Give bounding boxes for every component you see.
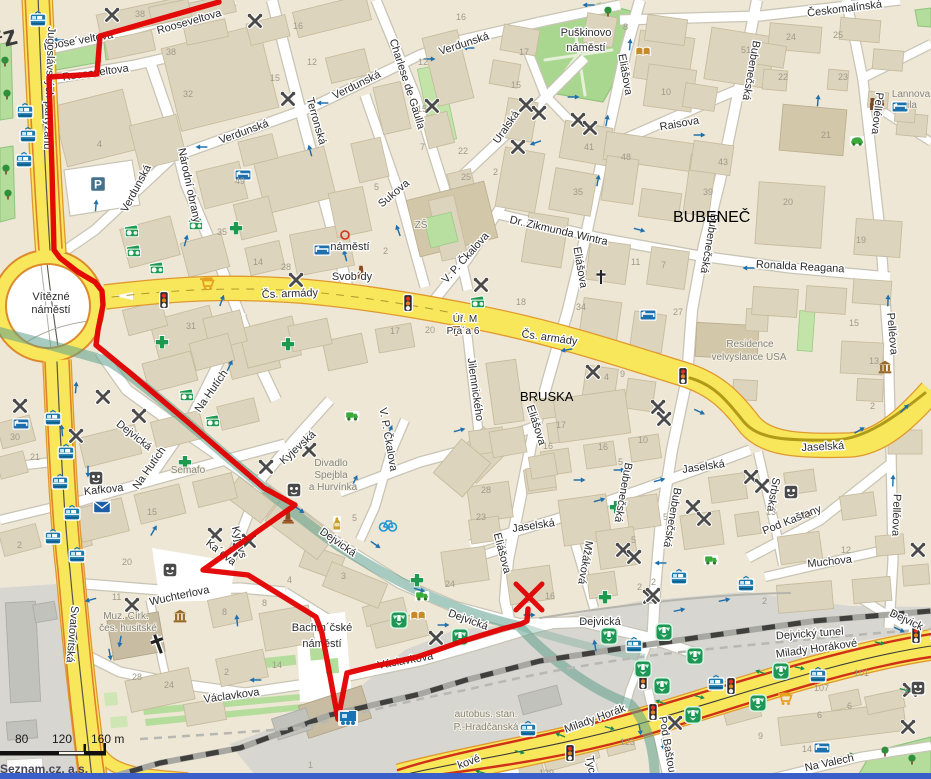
svg-text:9: 9	[758, 731, 763, 741]
svg-text:1: 1	[308, 760, 313, 770]
svg-text:20: 20	[425, 325, 435, 335]
svg-text:5: 5	[374, 182, 379, 192]
svg-text:49: 49	[235, 176, 245, 186]
svg-text:2: 2	[383, 246, 388, 256]
svg-text:27: 27	[673, 307, 683, 317]
svg-text:2: 2	[224, 667, 229, 677]
svg-text:80: 80	[15, 732, 29, 746]
svg-text:28: 28	[281, 262, 291, 272]
svg-text:Residence: Residence	[726, 339, 774, 350]
svg-text:4: 4	[97, 139, 102, 149]
svg-text:24: 24	[786, 32, 796, 42]
svg-text:5: 5	[631, 535, 636, 545]
svg-text:5: 5	[618, 457, 623, 467]
svg-text:Lannova: Lannova	[892, 89, 931, 100]
svg-text:10: 10	[638, 435, 648, 445]
svg-text:12: 12	[801, 510, 811, 520]
svg-text:20: 20	[783, 197, 793, 207]
svg-text:38: 38	[166, 47, 176, 57]
svg-text:35: 35	[573, 187, 583, 197]
svg-text:21: 21	[821, 130, 831, 140]
svg-text:Úř. M: Úř. M	[453, 312, 477, 325]
svg-text:2: 2	[637, 582, 642, 592]
svg-text:náměstí: náměstí	[566, 42, 605, 54]
svg-text:7: 7	[420, 142, 425, 152]
svg-text:15: 15	[270, 73, 280, 83]
svg-text:14: 14	[272, 660, 282, 670]
svg-text:7: 7	[661, 260, 666, 270]
svg-text:čes. husitské: čes. husitské	[99, 623, 157, 634]
svg-text:25: 25	[461, 172, 471, 182]
svg-text:velvyslance USA: velvyslance USA	[711, 352, 786, 363]
svg-text:16: 16	[293, 21, 303, 31]
svg-text:autobus. stan.: autobus. stan.	[455, 709, 518, 720]
svg-text:21: 21	[30, 452, 40, 462]
svg-text:23: 23	[476, 512, 486, 522]
svg-text:18: 18	[516, 297, 526, 307]
svg-text:24: 24	[164, 680, 174, 690]
svg-text:17: 17	[556, 420, 566, 430]
svg-text:120: 120	[52, 732, 72, 746]
svg-text:2: 2	[17, 540, 22, 550]
svg-text:10: 10	[661, 87, 671, 97]
svg-text:23: 23	[838, 72, 848, 82]
svg-text:3: 3	[341, 571, 346, 581]
svg-text:38: 38	[135, 9, 145, 19]
svg-text:12: 12	[418, 57, 428, 67]
svg-text:8: 8	[623, 22, 628, 32]
svg-text:Puškinovo: Puškinovo	[561, 27, 612, 39]
svg-text:123: 123	[620, 737, 635, 747]
svg-text:3: 3	[903, 686, 908, 696]
svg-text:4: 4	[287, 575, 292, 585]
svg-text:8: 8	[262, 598, 267, 608]
svg-text:28: 28	[132, 672, 142, 682]
svg-text:11: 11	[112, 592, 121, 602]
svg-text:Čs. armády: Čs. armády	[262, 286, 319, 301]
svg-text:Dejvická: Dejvická	[579, 616, 621, 628]
svg-text:17: 17	[519, 47, 529, 57]
svg-text:2: 2	[762, 596, 767, 606]
svg-text:Pelléova: Pelléova	[889, 494, 902, 537]
svg-text:BUBENEČ: BUBENEČ	[673, 207, 750, 226]
svg-text:Semafo: Semafo	[171, 465, 206, 476]
svg-text:24: 24	[445, 579, 455, 589]
svg-text:5: 5	[663, 512, 668, 522]
svg-text:2: 2	[870, 401, 875, 411]
svg-text:12: 12	[841, 545, 851, 555]
svg-text:15: 15	[849, 318, 859, 328]
svg-text:Jaselská: Jaselská	[801, 440, 845, 454]
svg-text:Spejbla: Spejbla	[314, 470, 348, 481]
svg-text:31: 31	[186, 321, 196, 331]
svg-text:6: 6	[847, 701, 852, 711]
svg-text:32: 32	[183, 89, 193, 99]
svg-text:12: 12	[307, 57, 317, 67]
svg-text:43: 43	[718, 157, 728, 167]
svg-text:6: 6	[817, 710, 822, 720]
svg-text:BRUSKA: BRUSKA	[520, 389, 574, 404]
svg-text:ZŠ: ZŠ	[415, 218, 428, 231]
svg-text:a Hurvínka: a Hurvínka	[309, 482, 358, 493]
svg-text:15: 15	[147, 507, 157, 517]
svg-text:16: 16	[456, 12, 466, 22]
svg-text:30: 30	[10, 432, 20, 442]
svg-text:34: 34	[576, 302, 586, 312]
svg-text:28: 28	[481, 485, 491, 495]
svg-text:Muz. Círk.: Muz. Círk.	[103, 611, 149, 622]
svg-text:Divadlo: Divadlo	[314, 458, 348, 469]
svg-text:160 m: 160 m	[91, 732, 124, 746]
svg-text:Vítězné: Vítězné	[32, 291, 69, 303]
svg-text:22: 22	[458, 146, 468, 156]
svg-text:5: 5	[352, 513, 357, 523]
svg-text:8: 8	[222, 607, 227, 617]
svg-text:Pra´a 6: Pra´a 6	[447, 325, 480, 337]
svg-text:13: 13	[766, 507, 776, 517]
svg-text:4: 4	[604, 372, 609, 382]
svg-text:16: 16	[598, 442, 608, 452]
svg-text:P.-Hradčanská: P.-Hradčanská	[454, 722, 519, 733]
svg-text:17: 17	[390, 326, 400, 336]
svg-text:19: 19	[856, 235, 866, 245]
svg-text:11: 11	[631, 257, 640, 267]
svg-text:39: 39	[703, 187, 713, 197]
svg-text:22: 22	[778, 72, 788, 82]
svg-text:15: 15	[417, 104, 427, 114]
svg-text:Svob´dy: Svob´dy	[332, 271, 373, 283]
svg-text:16: 16	[545, 591, 555, 601]
svg-text:9: 9	[620, 369, 625, 379]
svg-text:13: 13	[869, 356, 879, 366]
svg-text:48: 48	[621, 152, 631, 162]
svg-text:15: 15	[511, 80, 521, 90]
svg-text:náměstí: náměstí	[31, 304, 70, 316]
svg-text:16: 16	[543, 441, 553, 451]
svg-text:2: 2	[651, 577, 656, 587]
svg-text:náměstí: náměstí	[330, 241, 369, 253]
svg-text:25: 25	[833, 30, 843, 40]
svg-text:20: 20	[122, 557, 132, 567]
svg-text:ila: ila	[907, 100, 917, 111]
svg-text:2: 2	[493, 167, 498, 177]
svg-text:14: 14	[253, 257, 263, 267]
svg-text:101: 101	[854, 668, 869, 678]
svg-text:14: 14	[802, 744, 812, 754]
svg-text:51: 51	[741, 45, 751, 55]
svg-text:35: 35	[217, 227, 227, 237]
svg-text:41: 41	[584, 142, 594, 152]
svg-text:107: 107	[814, 683, 829, 693]
